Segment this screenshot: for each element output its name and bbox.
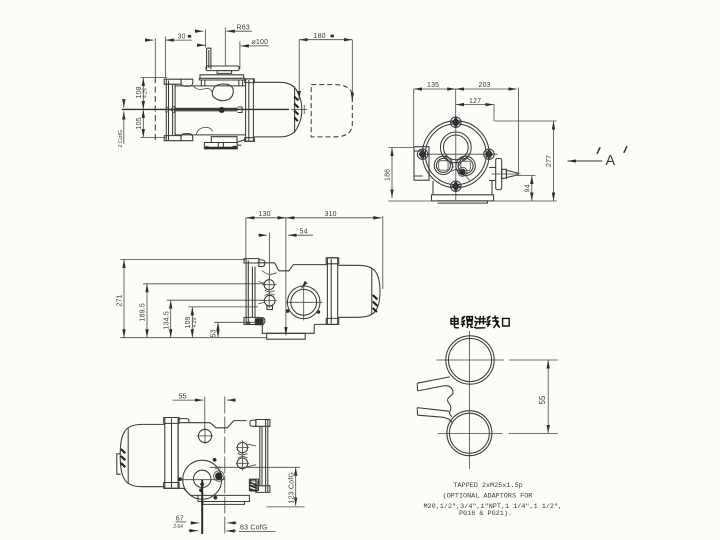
svg-text:63 CofG: 63 CofG <box>240 525 267 532</box>
svg-text:203: 203 <box>479 82 491 89</box>
svg-text:105: 105 <box>136 117 143 129</box>
svg-text:53: 53 <box>211 329 218 337</box>
svg-text:123 CofG: 123 CofG <box>288 472 295 504</box>
svg-text:271: 271 <box>117 294 124 306</box>
svg-text:134.5: 134.5 <box>163 311 170 330</box>
svg-text:55: 55 <box>179 393 187 400</box>
svg-text:⌀100: ⌀100 <box>252 39 269 46</box>
svg-text:4.29: 4.29 <box>192 318 198 328</box>
svg-text:94: 94 <box>525 184 532 192</box>
svg-text:2 CofG: 2 CofG <box>118 130 124 148</box>
svg-text:30: 30 <box>178 33 186 40</box>
svg-text:186: 186 <box>385 169 392 181</box>
svg-text:M3: M3 <box>215 466 222 471</box>
svg-text:277: 277 <box>546 155 553 167</box>
svg-text:54: 54 <box>300 228 308 235</box>
svg-text:189.5: 189.5 <box>140 303 147 322</box>
svg-text:2.64: 2.64 <box>173 524 183 530</box>
svg-text:PG16 & PG21).: PG16 & PG21). <box>459 510 512 518</box>
svg-text:310: 310 <box>325 211 337 218</box>
svg-text:180: 180 <box>314 33 326 40</box>
svg-text:55: 55 <box>538 395 547 404</box>
svg-text:R63: R63 <box>237 25 250 32</box>
svg-text:A: A <box>606 153 616 169</box>
svg-text:135: 135 <box>427 82 439 89</box>
svg-text:130: 130 <box>259 211 271 218</box>
svg-text:(OPTIONAL ADAPTORS FOR: (OPTIONAL ADAPTORS FOR <box>443 492 533 500</box>
svg-text:TAPPED 2xM25x1.5p: TAPPED 2xM25x1.5p <box>453 482 522 490</box>
svg-text:127: 127 <box>469 98 481 105</box>
svg-text:4.25: 4.25 <box>142 88 148 98</box>
